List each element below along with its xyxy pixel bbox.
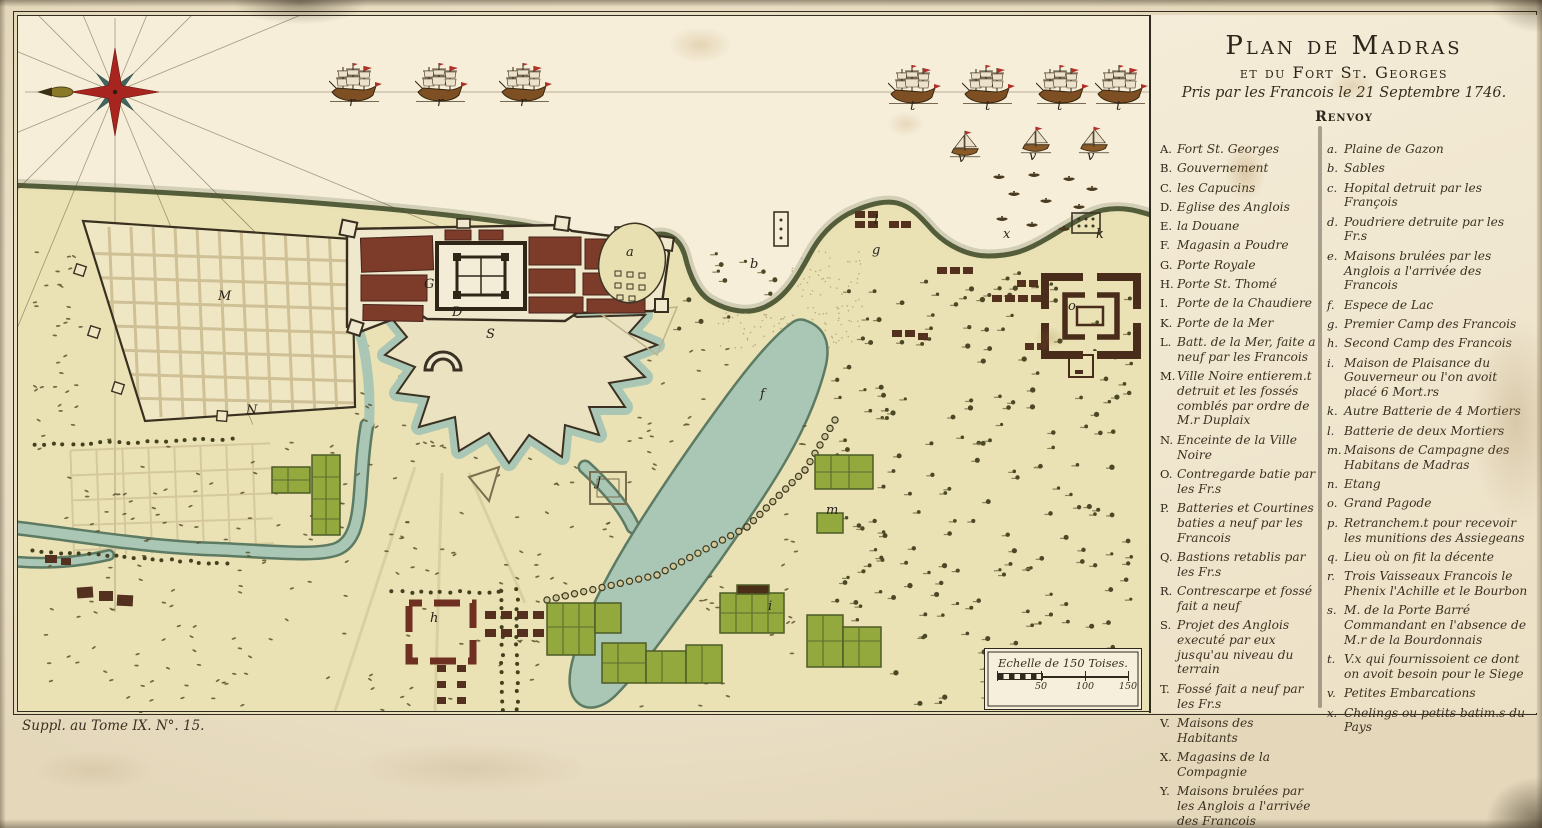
legend-entry: o. Grand Pagode [1327, 496, 1531, 511]
legend-key: m. [1327, 443, 1344, 473]
legend-key: F. [1160, 238, 1177, 253]
legend-text: Etang [1344, 477, 1531, 492]
legend-key: P. [1160, 501, 1177, 545]
legend-text: Batteries et Courtines baties a neuf par… [1177, 501, 1317, 545]
legend-entry: R. Contrescarpe et fossé fait a neuf [1160, 584, 1317, 614]
scale-caption: Echelle de 150 Toises. [985, 656, 1141, 670]
legend-key: D. [1160, 200, 1177, 215]
legend-key: O. [1160, 467, 1177, 497]
legend-entry: Y. Maisons brulées par les Anglois a l'a… [1160, 784, 1317, 828]
legend-entry: A. Fort St. Georges [1160, 142, 1317, 157]
legend-text: Gouvernement [1177, 161, 1317, 176]
legend-text: Porte Royale [1177, 258, 1317, 273]
legend-text: Lieu où on fit la décente [1344, 550, 1531, 565]
legend-heading: Renvoy [1151, 109, 1537, 125]
legend-entry: G. Porte Royale [1160, 258, 1317, 273]
legend-text: les Capucins [1177, 181, 1317, 196]
scale-cartouche: Echelle de 150 Toises. 50 100 150 [984, 648, 1142, 710]
legend-text: Porte de la Chaudiere [1177, 296, 1317, 311]
legend-text: Eglise des Anglois [1177, 200, 1317, 215]
legend-entry: g. Premier Camp des Francois [1327, 317, 1531, 332]
legend-key: S. [1160, 618, 1177, 677]
legend-key: N. [1160, 433, 1177, 463]
scale-bar: 50 100 150 [997, 673, 1129, 695]
legend-entry: r. Trois Vaisseaux Francois le Phenix l'… [1327, 569, 1531, 599]
legend-text: Chelings ou petits batim.s du Pays [1344, 706, 1531, 736]
legend-entry: E. la Douane [1160, 219, 1317, 234]
legend-entry: H. Porte St. Thomé [1160, 277, 1317, 292]
legend-text: Espece de Lac [1344, 298, 1531, 313]
legend-entry: C. les Capucins [1160, 181, 1317, 196]
legend-text: Batt. de la Mer, faite a neuf par les Fr… [1177, 335, 1317, 365]
legend-key: v. [1327, 686, 1344, 701]
legend-key: I. [1160, 296, 1177, 311]
legend-key: b. [1327, 161, 1344, 176]
legend-entry: X. Magasins de la Compagnie [1160, 750, 1317, 780]
legend-column-left: A. Fort St. Georges B. Gouvernement C. l… [1160, 142, 1317, 828]
legend-key: k. [1327, 404, 1344, 419]
legend-column-right: a. Plaine de Gazon b. Sables c. Hopital … [1327, 142, 1531, 740]
legend-entry: M. Ville Noire entierem.t detruit et les… [1160, 369, 1317, 428]
legend-text: Enceinte de la Ville Noire [1177, 433, 1317, 463]
legend-key: c. [1327, 181, 1344, 211]
legend-text: Contrescarpe et fossé fait a neuf [1177, 584, 1317, 614]
legend-text: Sables [1344, 161, 1531, 176]
legend-key: E. [1160, 219, 1177, 234]
legend-text: Ville Noire entierem.t detruit et les fo… [1177, 369, 1317, 428]
scale-tick: 100 [1076, 681, 1094, 692]
legend-key: i. [1327, 356, 1344, 400]
legend-key: M. [1160, 369, 1177, 428]
legend-key: Q. [1160, 550, 1177, 580]
legend-text: Poudriere detruite par les Fr.s [1344, 215, 1531, 245]
legend-entry: c. Hopital detruit par les François [1327, 181, 1531, 211]
legend-entry: k. Autre Batterie de 4 Mortiers [1327, 404, 1531, 419]
legend-divider [1319, 127, 1321, 707]
legend-key: p. [1327, 516, 1344, 546]
scale-tick: 50 [1035, 681, 1047, 692]
legend-text: Autre Batterie de 4 Mortiers [1344, 404, 1531, 419]
scale-bar-divisions [997, 673, 1043, 680]
legend-key: A. [1160, 142, 1177, 157]
legend-entry: q. Lieu où on fit la décente [1327, 550, 1531, 565]
legend-entry: T. Fossé fait a neuf par les Fr.s [1160, 682, 1317, 712]
legend-key: d. [1327, 215, 1344, 245]
legend-entry: K. Porte de la Mer [1160, 316, 1317, 331]
legend-entry: N. Enceinte de la Ville Noire [1160, 433, 1317, 463]
legend-entry: V. Maisons des Habitants [1160, 716, 1317, 746]
map-subtitle: et du Fort St. Georges [1151, 63, 1537, 82]
legend-key: C. [1160, 181, 1177, 196]
legend-text: Porte St. Thomé [1177, 277, 1317, 292]
legend-text: Premier Camp des Francois [1344, 317, 1531, 332]
legend-entry: Q. Bastions retablis par les Fr.s [1160, 550, 1317, 580]
legend-text: Magasins de la Compagnie [1177, 750, 1317, 780]
scale-tick: 150 [1119, 681, 1137, 692]
legend-text: Trois Vaisseaux Francois le Phenix l'Ach… [1344, 569, 1531, 599]
legend-text: V.x qui fournissoient ce dont on avoit b… [1344, 652, 1531, 682]
legend-text: Magasin a Poudre [1177, 238, 1317, 253]
legend-entry: l. Batterie de deux Mortiers [1327, 424, 1531, 439]
legend-text: Grand Pagode [1344, 496, 1531, 511]
legend-text: Projet des Anglois executé par eux jusqu… [1177, 618, 1317, 677]
legend-text: Maisons brulées par les Anglois a l'arri… [1177, 784, 1317, 828]
legend-text: Batterie de deux Mortiers [1344, 424, 1531, 439]
legend-key: R. [1160, 584, 1177, 614]
legend-text: Plaine de Gazon [1344, 142, 1531, 157]
legend-entry: O. Contregarde batie par les Fr.s [1160, 467, 1317, 497]
legend-key: s. [1327, 603, 1344, 647]
legend-text: Bastions retablis par les Fr.s [1177, 550, 1317, 580]
legend-key: Y. [1160, 784, 1177, 828]
legend-text: Petites Embarcations [1344, 686, 1531, 701]
legend-text: Hopital detruit par les François [1344, 181, 1531, 211]
legend-text: Maisons des Habitants [1177, 716, 1317, 746]
legend-entry: D. Eglise des Anglois [1160, 200, 1317, 215]
legend-entry: s. M. de la Porte Barré Commandant en l'… [1327, 603, 1531, 647]
legend-text: Maisons brulées par les Anglois a l'arri… [1344, 249, 1531, 293]
legend-entry: a. Plaine de Gazon [1327, 142, 1531, 157]
legend-text: Second Camp des Francois [1344, 336, 1531, 351]
legend-entry: v. Petites Embarcations [1327, 686, 1531, 701]
legend-entry: p. Retranchem.t pour recevoir les muniti… [1327, 516, 1531, 546]
legend-entry: d. Poudriere detruite par les Fr.s [1327, 215, 1531, 245]
legend-key: n. [1327, 477, 1344, 492]
legend-entry: F. Magasin a Poudre [1160, 238, 1317, 253]
legend-text: Porte de la Mer [1177, 316, 1317, 331]
legend-key: e. [1327, 249, 1344, 293]
legend-key: T. [1160, 682, 1177, 712]
legend-entry: I. Porte de la Chaudiere [1160, 296, 1317, 311]
legend-key: B. [1160, 161, 1177, 176]
legend-entry: m. Maisons de Campagne des Habitans de M… [1327, 443, 1531, 473]
map-title: Plan de Madras [1151, 31, 1537, 61]
legend-key: o. [1327, 496, 1344, 511]
legend-key: G. [1160, 258, 1177, 273]
legend-text: la Douane [1177, 219, 1317, 234]
legend-entry: t. V.x qui fournissoient ce dont on avoi… [1327, 652, 1531, 682]
legend-text: Maisons de Campagne des Habitans de Madr… [1344, 443, 1531, 473]
legend-text: Fossé fait a neuf par les Fr.s [1177, 682, 1317, 712]
legend-entry: n. Etang [1327, 477, 1531, 492]
legend-entry: h. Second Camp des Francois [1327, 336, 1531, 351]
legend-text: M. de la Porte Barré Commandant en l'abs… [1344, 603, 1531, 647]
legend-key: g. [1327, 317, 1344, 332]
legend-text: Maison de Plaisance du Gouverneur ou l'o… [1344, 356, 1531, 400]
legend-text: Retranchem.t pour recevoir les munitions… [1344, 516, 1531, 546]
legend-key: x. [1327, 706, 1344, 736]
legend-entry: B. Gouvernement [1160, 161, 1317, 176]
legend-key: t. [1327, 652, 1344, 682]
legend-text: Fort St. Georges [1177, 142, 1317, 157]
legend-entry: i. Maison de Plaisance du Gouverneur ou … [1327, 356, 1531, 400]
legend-key: L. [1160, 335, 1177, 365]
legend-entry: f. Espece de Lac [1327, 298, 1531, 313]
legend-key: q. [1327, 550, 1344, 565]
legend-key: r. [1327, 569, 1344, 599]
legend-key: H. [1160, 277, 1177, 292]
plate-imprint: Suppl. au Tome IX. N°. 15. [22, 718, 204, 734]
legend-key: X. [1160, 750, 1177, 780]
legend-key: a. [1327, 142, 1344, 157]
legend-entry: x. Chelings ou petits batim.s du Pays [1327, 706, 1531, 736]
legend-entry: S. Projet des Anglois executé par eux ju… [1160, 618, 1317, 677]
legend-text: Contregarde batie par les Fr.s [1177, 467, 1317, 497]
legend-entry: b. Sables [1327, 161, 1531, 176]
legend-entry: e. Maisons brulées par les Anglois a l'a… [1327, 249, 1531, 293]
legend-entry: P. Batteries et Courtines baties a neuf … [1160, 501, 1317, 545]
legend-key: l. [1327, 424, 1344, 439]
legend-key: V. [1160, 716, 1177, 746]
historical-map-plate: Plan de Madras et du Fort St. Georges Pr… [0, 0, 1542, 828]
legend-key: h. [1327, 336, 1344, 351]
legend-panel: Plan de Madras et du Fort St. Georges Pr… [1149, 15, 1537, 713]
legend-key: K. [1160, 316, 1177, 331]
legend-entry: L. Batt. de la Mer, faite a neuf par les… [1160, 335, 1317, 365]
legend-key: f. [1327, 298, 1344, 313]
map-caption: Pris par les Francois le 21 Septembre 17… [1151, 85, 1537, 101]
